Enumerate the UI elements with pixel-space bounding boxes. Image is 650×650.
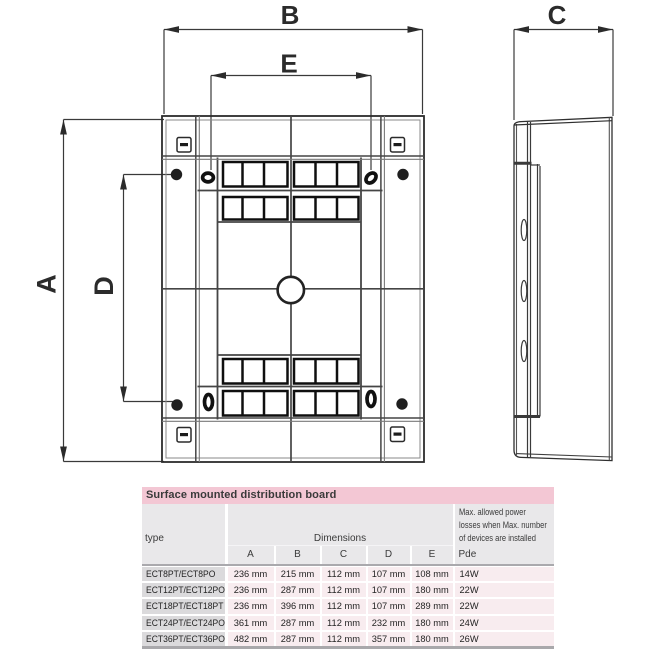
svg-text:A: A [32,274,62,294]
svg-text:D: D [89,276,119,296]
svg-text:E: E [280,49,297,79]
svg-text:B: B [281,0,300,30]
svg-text:C: C [548,0,567,30]
